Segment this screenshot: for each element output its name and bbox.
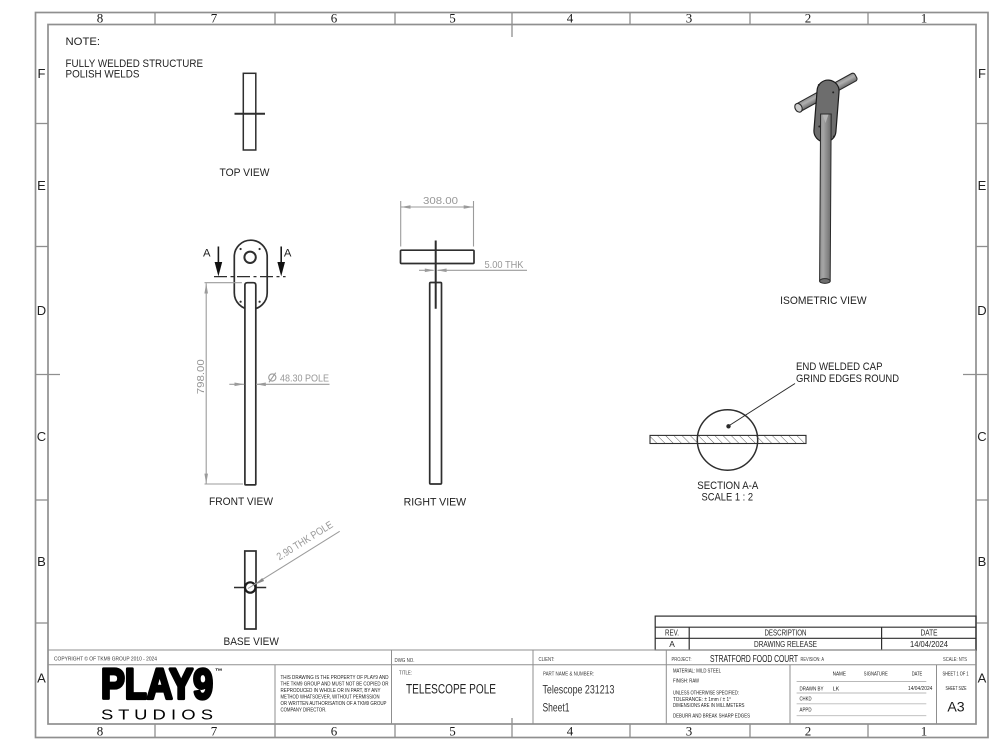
svg-text:STRATFORD FOOD COURT: STRATFORD FOOD COURT	[710, 654, 798, 665]
svg-text:CLIENT:: CLIENT:	[539, 657, 555, 663]
svg-text:798.00: 798.00	[195, 359, 207, 394]
svg-text:GRIND EDGES ROUND: GRIND EDGES ROUND	[796, 373, 899, 385]
svg-text:REV.: REV.	[665, 628, 679, 638]
svg-text:DESCRIPTION: DESCRIPTION	[765, 628, 807, 638]
svg-text:2: 2	[805, 11, 812, 26]
svg-text:6: 6	[331, 11, 338, 26]
svg-text:UNLESS OTHERWISE SPECIFIED:: UNLESS OTHERWISE SPECIFIED:	[673, 691, 739, 697]
svg-text:REPRODUCED IN WHOLE OR IN PART: REPRODUCED IN WHOLE OR IN PART, BY ANY	[281, 688, 381, 694]
svg-text:C: C	[977, 429, 986, 444]
svg-text:8: 8	[97, 11, 104, 26]
svg-text:5: 5	[449, 11, 456, 26]
svg-text:SECTION A-A: SECTION A-A	[697, 480, 758, 492]
svg-text:PROJECT:: PROJECT:	[672, 657, 692, 663]
svg-text:Sheet1: Sheet1	[543, 700, 570, 714]
svg-text:8: 8	[97, 724, 104, 739]
svg-text:TELESCOPE POLE: TELESCOPE POLE	[406, 682, 496, 697]
svg-text:SCALE: NTS: SCALE: NTS	[943, 657, 967, 663]
svg-text:LK: LK	[833, 687, 840, 693]
svg-text:THE TKM9 GROUP AND MUST NOT BE: THE TKM9 GROUP AND MUST NOT BE COPIED OR	[281, 682, 389, 688]
svg-text:OR WRITTEN AUTHORISATION OF A: OR WRITTEN AUTHORISATION OF A TKM9 GROUP	[281, 701, 387, 707]
svg-text:E: E	[37, 178, 46, 193]
svg-text:FRONT VIEW: FRONT VIEW	[209, 496, 273, 508]
svg-text:5.00 THK: 5.00 THK	[485, 259, 524, 271]
svg-text:B: B	[978, 554, 987, 569]
svg-text:A: A	[978, 671, 987, 686]
svg-text:DIMENSIONS ARE IN MILLIMETERS: DIMENSIONS ARE IN MILLIMETERS	[673, 703, 745, 709]
svg-text:C: C	[37, 429, 46, 444]
svg-text:14/04/2024: 14/04/2024	[908, 686, 932, 692]
svg-text:A: A	[203, 248, 211, 260]
svg-text:REVISION: A: REVISION: A	[801, 657, 825, 663]
svg-text:SHEET 1 OF 1: SHEET 1 OF 1	[943, 672, 969, 678]
svg-text:METHOD WHATSOEVER, WITHOUT PER: METHOD WHATSOEVER, WITHOUT PERMISSION	[281, 695, 380, 701]
svg-text:D: D	[977, 303, 986, 318]
svg-text:S T U D I O S: S T U D I O S	[101, 707, 213, 723]
svg-text:7: 7	[211, 724, 218, 739]
svg-text:6: 6	[331, 724, 338, 739]
svg-text:DWG NO.: DWG NO.	[395, 658, 415, 664]
svg-text:TOLERANCE: ± 1mm / ± 1°: TOLERANCE: ± 1mm / ± 1°	[673, 697, 731, 703]
svg-text:3: 3	[686, 724, 693, 739]
svg-text:CHKD: CHKD	[800, 697, 812, 703]
svg-text:A: A	[37, 671, 46, 686]
svg-text:5: 5	[449, 724, 456, 739]
svg-text:Telescope 231213: Telescope 231213	[543, 683, 615, 697]
svg-text:A3: A3	[947, 700, 964, 715]
svg-text:3: 3	[686, 11, 693, 26]
svg-text:PART NAME & NUMBER:: PART NAME & NUMBER:	[543, 672, 594, 678]
svg-text:RIGHT VIEW: RIGHT VIEW	[404, 497, 467, 509]
svg-text:APPD: APPD	[800, 708, 812, 714]
svg-text:TITLE:: TITLE:	[399, 671, 412, 677]
svg-text:DRAWN BY: DRAWN BY	[800, 687, 824, 693]
svg-text:308.00: 308.00	[423, 195, 458, 207]
svg-text:F: F	[38, 66, 46, 81]
svg-text:48.30 POLE: 48.30 POLE	[280, 372, 329, 384]
svg-text:SHEET SIZE: SHEET SIZE	[946, 686, 967, 692]
svg-text:4: 4	[567, 11, 574, 26]
svg-text:THIS DRAWING IS THE PROPERTY O: THIS DRAWING IS THE PROPERTY OF PLAY9 AN…	[281, 675, 389, 681]
svg-text:14/04/2024: 14/04/2024	[910, 639, 948, 649]
svg-text:A: A	[284, 248, 292, 260]
svg-text:MATERIAL: MILD STEEL: MATERIAL: MILD STEEL	[673, 669, 721, 675]
svg-text:BASE VIEW: BASE VIEW	[224, 636, 280, 648]
svg-text:1: 1	[921, 724, 928, 739]
svg-text:B: B	[37, 554, 46, 569]
svg-text:DEBURR AND BREAK SHARP EDGES: DEBURR AND BREAK SHARP EDGES	[673, 714, 750, 720]
svg-text:2: 2	[805, 724, 812, 739]
svg-text:ISOMETRIC VIEW: ISOMETRIC VIEW	[780, 295, 867, 307]
svg-text:DRAWING RELEASE: DRAWING RELEASE	[754, 639, 817, 649]
svg-text:POLISH WELDS: POLISH WELDS	[66, 69, 140, 81]
svg-text:4: 4	[567, 724, 574, 739]
svg-text:DATE: DATE	[921, 628, 938, 638]
svg-text:SIGNATURE: SIGNATURE	[864, 672, 888, 678]
svg-text:TOP VIEW: TOP VIEW	[220, 167, 270, 179]
svg-text:2.90 THK POLE: 2.90 THK POLE	[275, 519, 336, 563]
svg-text:END WELDED CAP: END WELDED CAP	[796, 361, 883, 373]
svg-text:D: D	[37, 303, 46, 318]
svg-text:E: E	[978, 178, 987, 193]
svg-text:DATE: DATE	[912, 672, 923, 678]
svg-text:NAME: NAME	[833, 672, 847, 678]
svg-text:™: ™	[215, 667, 223, 676]
svg-text:7: 7	[211, 11, 218, 26]
svg-text:F: F	[978, 66, 986, 81]
svg-text:SCALE 1 : 2: SCALE 1 : 2	[702, 492, 754, 504]
svg-text:PLAY9: PLAY9	[101, 661, 213, 709]
svg-text:1: 1	[921, 11, 928, 26]
svg-text:A: A	[669, 639, 675, 649]
svg-text:FINISH: RAW: FINISH: RAW	[673, 678, 700, 684]
svg-text:NOTE:: NOTE:	[66, 36, 101, 48]
svg-text:COMPANY DIRECTOR.: COMPANY DIRECTOR.	[281, 708, 327, 714]
